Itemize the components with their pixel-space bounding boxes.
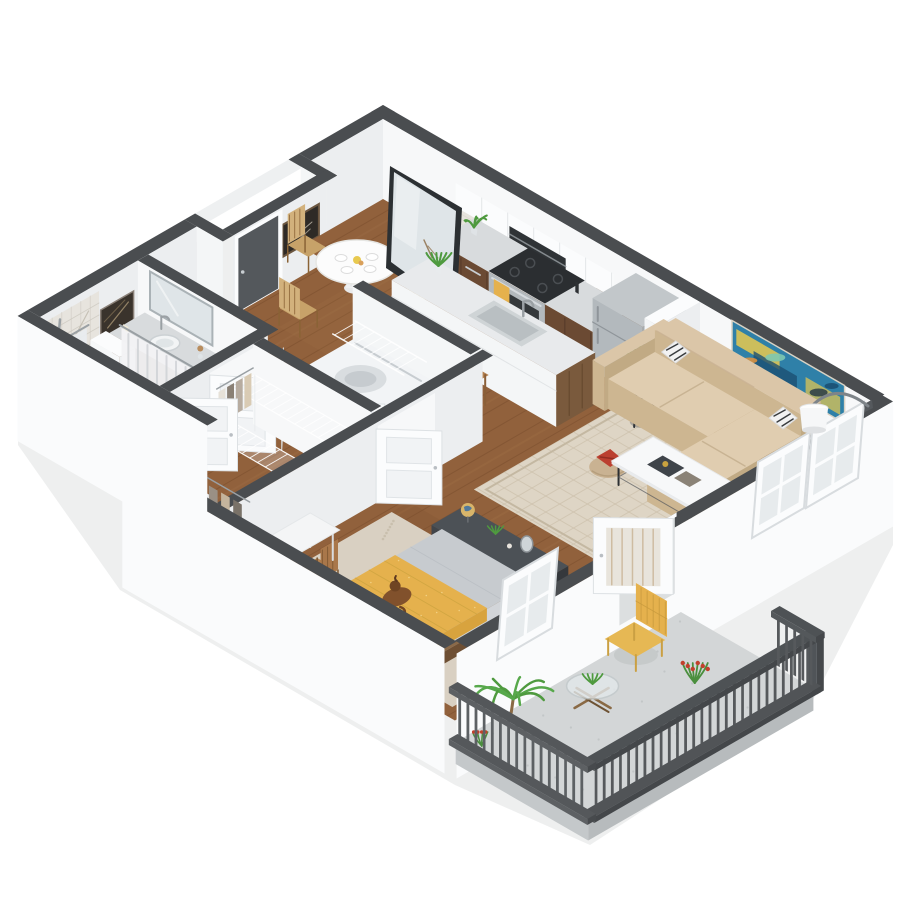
ellipse [344,371,376,387]
dot [389,526,392,529]
dot [387,529,390,532]
ellipse [335,255,347,262]
decor [662,461,668,467]
dot [382,538,385,541]
railing-slat [785,620,788,672]
dot [426,595,428,597]
flower [701,664,705,668]
dot [441,592,443,594]
shape [387,437,432,464]
dot [370,582,372,584]
shape [593,360,605,411]
ellipse [156,339,174,348]
dot [390,523,393,526]
dot [383,535,386,538]
dot [641,700,643,702]
ellipse [802,427,826,434]
ellipse [825,383,839,389]
railing-slat [810,634,813,686]
dot [632,770,634,772]
railing-slat [793,625,796,677]
shape [387,470,432,499]
dot [598,738,600,740]
dot [570,726,572,728]
dot [436,612,438,614]
toiletry [197,346,203,352]
dot [408,577,410,579]
wine-bottle [575,281,578,294]
dot [527,764,529,766]
flower [706,667,710,671]
ellipse [341,267,353,274]
floor-plan-viewport [0,0,900,900]
dot [691,682,693,684]
door-knob [229,433,233,437]
dot [458,610,460,612]
decor-bunny [507,544,512,549]
dot [542,714,544,716]
shape [606,528,660,587]
dresser-mirror [521,536,533,552]
ellipse [765,354,785,362]
dot [420,615,422,617]
flower [681,661,685,665]
dot [746,706,748,708]
balcony-door [593,518,673,595]
railing-slat [802,630,805,682]
dot [385,532,388,535]
dot [359,261,364,266]
flower [696,661,700,665]
door-knob [434,466,438,470]
dot [679,620,681,622]
dot [398,560,400,562]
toiletry [198,354,203,359]
garment [244,373,251,409]
door-knob [600,554,604,558]
dot [663,670,665,672]
ellipse [364,266,376,273]
bedroom-door [376,429,442,505]
dot [390,581,401,592]
dot [474,607,476,609]
flower [686,664,690,668]
flower [691,667,695,671]
ellipse [366,254,378,261]
dot [392,520,395,523]
railing-slat [777,616,780,668]
entry-door-handle [241,270,245,274]
floor-plan-3d-render [0,0,900,900]
